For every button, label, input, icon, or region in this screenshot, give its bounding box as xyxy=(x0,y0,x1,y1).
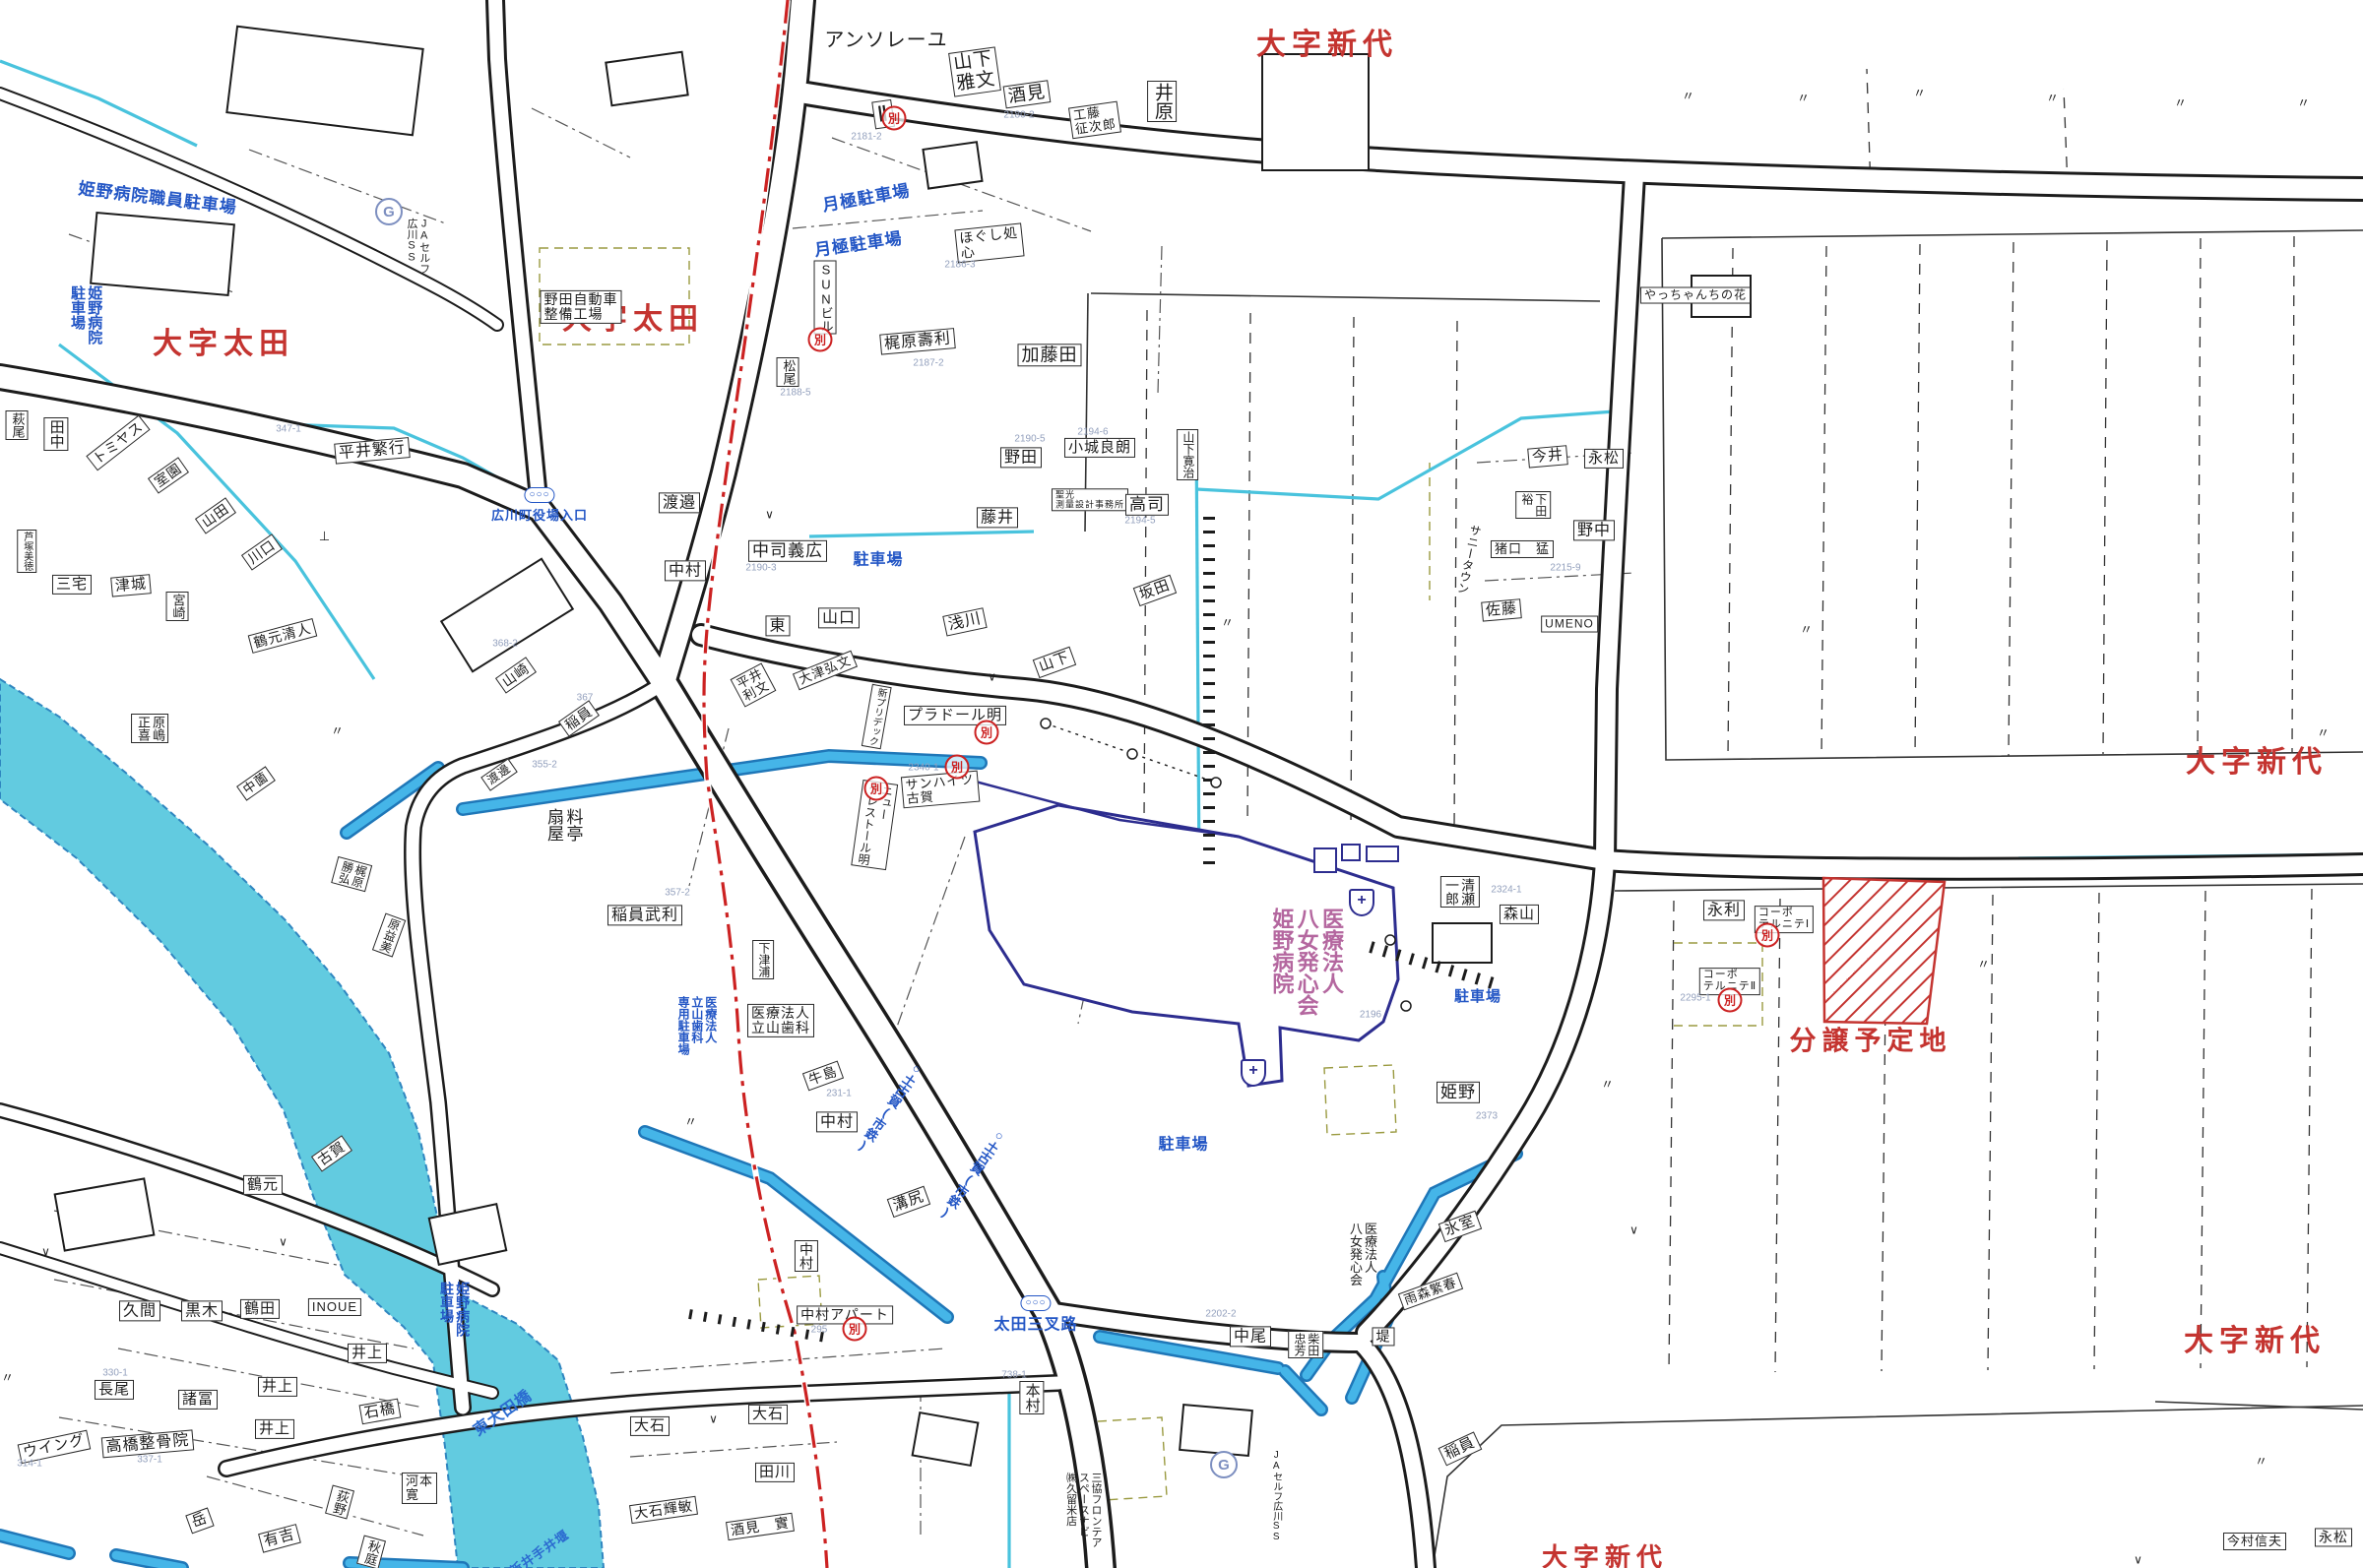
map-label: アンソレーユ xyxy=(824,31,947,52)
map-label: 大字新代 xyxy=(1542,1543,1668,1568)
map-label: 東 xyxy=(765,615,790,636)
map-label: 〃 xyxy=(1,1371,15,1385)
map-label: 姫野病院職員駐車場 xyxy=(77,180,237,218)
map-label: 井原 xyxy=(1147,81,1177,122)
map-label: ∨ xyxy=(709,1413,719,1426)
map-label: 浅川 xyxy=(942,607,988,637)
map-label: 氷室 xyxy=(1438,1211,1483,1243)
map-label: 河本 寛 xyxy=(402,1473,437,1504)
map-label: 藤井 xyxy=(977,507,1018,528)
map-label: 三宅 xyxy=(52,575,92,595)
map-label: 料亭 扇屋 xyxy=(543,808,582,842)
map-label: 2196 xyxy=(1360,1011,1381,1022)
map-label: 大字新代 xyxy=(2184,1326,2326,1357)
map-label: サンハイツ 古賀 xyxy=(901,771,980,809)
map-label: 渡邉 xyxy=(659,492,700,513)
map-label: 〃 xyxy=(2255,1455,2268,1469)
map-label: 牛島 xyxy=(802,1061,844,1092)
map-label: 諸冨 xyxy=(178,1390,218,1410)
map-label: 佐藤 xyxy=(1481,598,1522,622)
map-label: 井上 xyxy=(348,1344,387,1363)
map-label: 〃 xyxy=(1913,87,1927,100)
map-label-layer: アンソレーユⅡ山下 雅文酒見工藤 征次郎井原大字新代大字新代大字新代大字新代大字… xyxy=(0,0,2363,1568)
map-label: 2190-5 xyxy=(1014,435,1045,446)
map-label: 室園 xyxy=(148,457,189,493)
map-label: 大石 xyxy=(630,1416,670,1436)
map-label: 黒木 xyxy=(181,1300,223,1321)
map-label: 〃 xyxy=(2046,92,2060,105)
map-label: 稲員 xyxy=(558,700,600,736)
map-label: 東大田橋 xyxy=(471,1387,536,1439)
map-label: 坂田 xyxy=(1133,575,1178,607)
map-label: 荻野 xyxy=(325,1485,354,1520)
map-label: 今井 xyxy=(1527,445,1568,469)
map-label: 本村 xyxy=(1019,1381,1044,1414)
map-label: 中尾 xyxy=(1230,1326,1271,1347)
map-label: 中村 xyxy=(816,1111,858,1132)
map-label: 738-1 xyxy=(1001,1371,1027,1382)
map-label: 今村信夫 xyxy=(2223,1533,2286,1550)
map-label: 稲員武利 xyxy=(607,905,682,925)
cadastral-map: アンソレーユⅡ山下 雅文酒見工藤 征次郎井原大字新代大字新代大字新代大字新代大字… xyxy=(0,0,2363,1568)
map-label: 溝尻 xyxy=(887,1186,931,1219)
map-label: 2324-1 xyxy=(1491,886,1521,897)
gas-station-icon: G xyxy=(375,198,403,225)
map-label: ∨ xyxy=(279,1236,288,1249)
map-label: 山下 xyxy=(1033,647,1077,679)
hospital-icon: + xyxy=(1349,889,1374,916)
map-label: ∨ xyxy=(41,1246,51,1259)
map-label: 長尾 xyxy=(95,1380,134,1400)
map-label: 2194-5 xyxy=(1124,517,1155,528)
map-label: 平井繁行 xyxy=(334,437,411,465)
map-label: 〃 xyxy=(1601,1078,1615,1092)
map-label: 下田 裕 xyxy=(1515,491,1551,519)
map-label: 姫野 xyxy=(1437,1082,1480,1103)
map-label: 鶴田 xyxy=(240,1299,280,1319)
map-label: 2194-6 xyxy=(1077,428,1108,439)
map-label: 2188-5 xyxy=(780,389,810,400)
map-label: 330-1 xyxy=(102,1369,128,1380)
map-label: 宮崎 xyxy=(166,592,189,621)
map-label: 原益美 xyxy=(372,912,406,957)
map-label: やっちゃんちの花 xyxy=(1640,287,1751,304)
map-label: 医療法人 八女発心会 xyxy=(1347,1223,1376,1286)
map-label: 石橋 xyxy=(359,1399,402,1425)
map-label: 医療法人 立山歯科 xyxy=(747,1004,814,1037)
map-label: 大字新代 xyxy=(1256,30,1398,61)
map-label: 337-1 xyxy=(137,1456,162,1467)
map-label: 有吉 xyxy=(258,1524,301,1553)
map-label: 2180-2 xyxy=(1003,111,1034,122)
map-label: 駐車場 xyxy=(1454,989,1501,1005)
map-label: 山口 xyxy=(818,607,860,628)
map-label: JAセルフ広川SS xyxy=(1270,1450,1282,1542)
map-label: 大石 xyxy=(748,1405,788,1424)
map-label: 松尾 xyxy=(777,357,799,387)
map-label: ∨ xyxy=(1629,1224,1639,1237)
map-label: 314-1 xyxy=(17,1460,42,1471)
rental-mark-badge: 別 xyxy=(945,755,970,780)
map-label: 永松 xyxy=(1584,449,1624,469)
map-label: 大字太田 xyxy=(153,329,294,360)
map-label: 下津浦 xyxy=(752,940,774,979)
map-label: 太田三叉路 xyxy=(993,1316,1077,1333)
map-label: 2295-1 xyxy=(1680,994,1710,1005)
map-label: 姫野病院 駐車場 xyxy=(69,285,103,345)
map-label: 永利 xyxy=(1703,900,1745,920)
map-label: 2340-1 xyxy=(908,764,938,775)
map-label: 猪口 猛 xyxy=(1491,540,1554,558)
map-label: 加藤田 xyxy=(1018,344,1082,366)
map-label: 小城良朗 xyxy=(1064,438,1135,458)
map-label: 分譲予定地 xyxy=(1790,1027,1952,1055)
map-label: 堤 xyxy=(1373,1327,1395,1346)
map-label: 山下寛治 xyxy=(1177,429,1198,480)
intersection-marker-icon: ○○○ xyxy=(524,487,554,503)
map-label: 梶原 勝弘 xyxy=(331,856,372,892)
map-label: 中村 xyxy=(665,560,706,581)
rental-mark-badge: 別 xyxy=(843,1317,867,1342)
map-label: 野田自動車 整備工場 xyxy=(541,290,622,324)
map-label: 中薗 xyxy=(236,766,276,800)
map-label: 田川 xyxy=(755,1463,795,1482)
map-label: 山田 xyxy=(195,497,236,533)
map-label: 357-2 xyxy=(665,889,690,900)
map-label: 芦塚美徳 xyxy=(17,530,36,573)
map-label: ⊥ xyxy=(319,530,331,543)
map-label: 三協フロンテア スペースナビ ㈱久留米店 xyxy=(1064,1473,1102,1548)
map-label: 駐車場 xyxy=(1158,1136,1208,1153)
map-label: 医療法人 八女発心会 姫野病院 xyxy=(1269,908,1344,1016)
rental-mark-badge: 別 xyxy=(1718,988,1743,1013)
map-label: 永松 xyxy=(2315,1528,2352,1546)
map-label: 中村 xyxy=(795,1240,818,1272)
map-label: サニータウン xyxy=(1454,523,1482,595)
map-label: 2187-2 xyxy=(913,359,943,370)
map-label: 駐車場 xyxy=(853,551,903,568)
map-label: 大字新代 xyxy=(2186,747,2328,779)
map-label: 大津弘文 xyxy=(793,651,858,691)
map-label: ∨ xyxy=(988,671,997,684)
map-label: 田中 xyxy=(43,417,68,451)
map-label: 2202-2 xyxy=(1205,1310,1236,1321)
map-label: 〃 xyxy=(331,724,345,738)
map-label: 〃 xyxy=(2317,726,2331,740)
map-label: 2373 xyxy=(1476,1112,1498,1123)
map-label: 2190-3 xyxy=(745,564,776,575)
map-label: 鶴元清人 xyxy=(248,618,318,654)
rental-mark-badge: 別 xyxy=(864,777,889,801)
map-label: 広川町役場入口 xyxy=(491,509,588,523)
map-label: 2215-9 xyxy=(1550,564,1580,575)
map-label: 稲員 xyxy=(1438,1431,1483,1466)
map-label: 高司 xyxy=(1125,494,1169,516)
map-label: トミヤス xyxy=(86,415,150,471)
map-label: 久間 xyxy=(119,1300,160,1321)
map-label: 酒見 xyxy=(1003,80,1052,109)
map-label: 355-2 xyxy=(532,761,557,772)
map-label: 山下 雅文 xyxy=(948,46,1001,96)
map-label: 井上 xyxy=(255,1419,294,1439)
map-label: 〃 xyxy=(1682,90,1695,103)
map-label: 368-2 xyxy=(492,640,518,651)
map-label: 新井手井堰 xyxy=(507,1528,571,1568)
map-label: 野中 xyxy=(1573,520,1615,540)
map-label: 月極駐車場 xyxy=(813,230,904,261)
map-label: ○土古賀(市鉄) xyxy=(934,1125,1008,1223)
map-label: 梶原壽利 xyxy=(879,328,956,355)
map-label: 山崎 xyxy=(495,657,537,693)
map-label: 平井 利文 xyxy=(731,662,777,707)
map-label: ○土古賀(市鉄) xyxy=(852,1058,926,1156)
map-label: 〃 xyxy=(1977,958,1991,972)
rental-mark-badge: 別 xyxy=(1756,923,1780,948)
map-label: ほぐし処 心 xyxy=(954,222,1024,263)
map-label: 新プリデック xyxy=(862,684,891,749)
map-label: 347-1 xyxy=(276,425,301,436)
map-label: 古賀 xyxy=(311,1135,352,1171)
map-label: 月極駐車場 xyxy=(821,182,912,216)
rental-mark-badge: 別 xyxy=(882,106,907,131)
rental-mark-badge: 別 xyxy=(808,328,833,352)
map-label: JAセルフ 広川SS xyxy=(405,219,429,275)
map-label: 295 xyxy=(811,1326,828,1337)
map-label: 工藤 征次郎 xyxy=(1068,101,1121,140)
map-label: 〃 xyxy=(1221,616,1235,630)
hospital-icon: + xyxy=(1241,1059,1266,1087)
map-label: 津城 xyxy=(110,574,152,597)
map-label: 森山 xyxy=(1500,905,1539,924)
gas-station-icon: G xyxy=(1210,1451,1238,1478)
map-label: 姫野病院 駐車場 xyxy=(439,1282,471,1337)
map-label: ∨ xyxy=(2134,1554,2143,1567)
map-label: 鶴元 xyxy=(243,1175,283,1195)
rental-mark-badge: 別 xyxy=(975,721,999,745)
map-label: 〃 xyxy=(1800,623,1814,637)
intersection-marker-icon: ○○○ xyxy=(1020,1295,1051,1311)
map-label: 岳 xyxy=(185,1507,214,1534)
map-label: 〃 xyxy=(2297,96,2311,110)
map-label: 2186-3 xyxy=(944,261,975,272)
map-label: 大石輝敏 xyxy=(629,1496,698,1524)
map-label: 清瀬 一郎 xyxy=(1440,876,1480,908)
map-label: 渡邊 xyxy=(480,758,518,790)
map-label: 秋庭 xyxy=(356,1536,386,1568)
map-label: 231-1 xyxy=(826,1090,852,1100)
map-label: 2181-2 xyxy=(851,133,881,144)
map-label: INOUE xyxy=(308,1298,361,1316)
map-label: 〃 xyxy=(684,1115,698,1129)
map-label: 柴田 忠芳 xyxy=(1288,1331,1323,1358)
map-label: 367 xyxy=(577,694,594,705)
map-label: 原嶋 正喜 xyxy=(131,714,168,743)
map-label: UMENO xyxy=(1541,616,1598,633)
map-label: 酒見 實 xyxy=(726,1513,795,1540)
map-label: 川口 xyxy=(241,533,283,570)
map-label: 雨森繁春 xyxy=(1398,1273,1463,1311)
map-label: 聖光 測量設計事務所 xyxy=(1052,488,1128,511)
map-label: SUNビル xyxy=(814,261,837,335)
map-label: 野田 xyxy=(1000,447,1042,468)
map-label: 医療法人 立山歯科 専用駐車場 xyxy=(675,996,716,1055)
map-label: ∨ xyxy=(765,509,775,522)
map-label: 〃 xyxy=(1797,92,1811,105)
map-label: 萩尾 xyxy=(6,410,29,440)
map-label: 中司義広 xyxy=(748,540,827,562)
map-label: 井上 xyxy=(258,1377,297,1397)
map-label: 〃 xyxy=(2174,96,2188,110)
